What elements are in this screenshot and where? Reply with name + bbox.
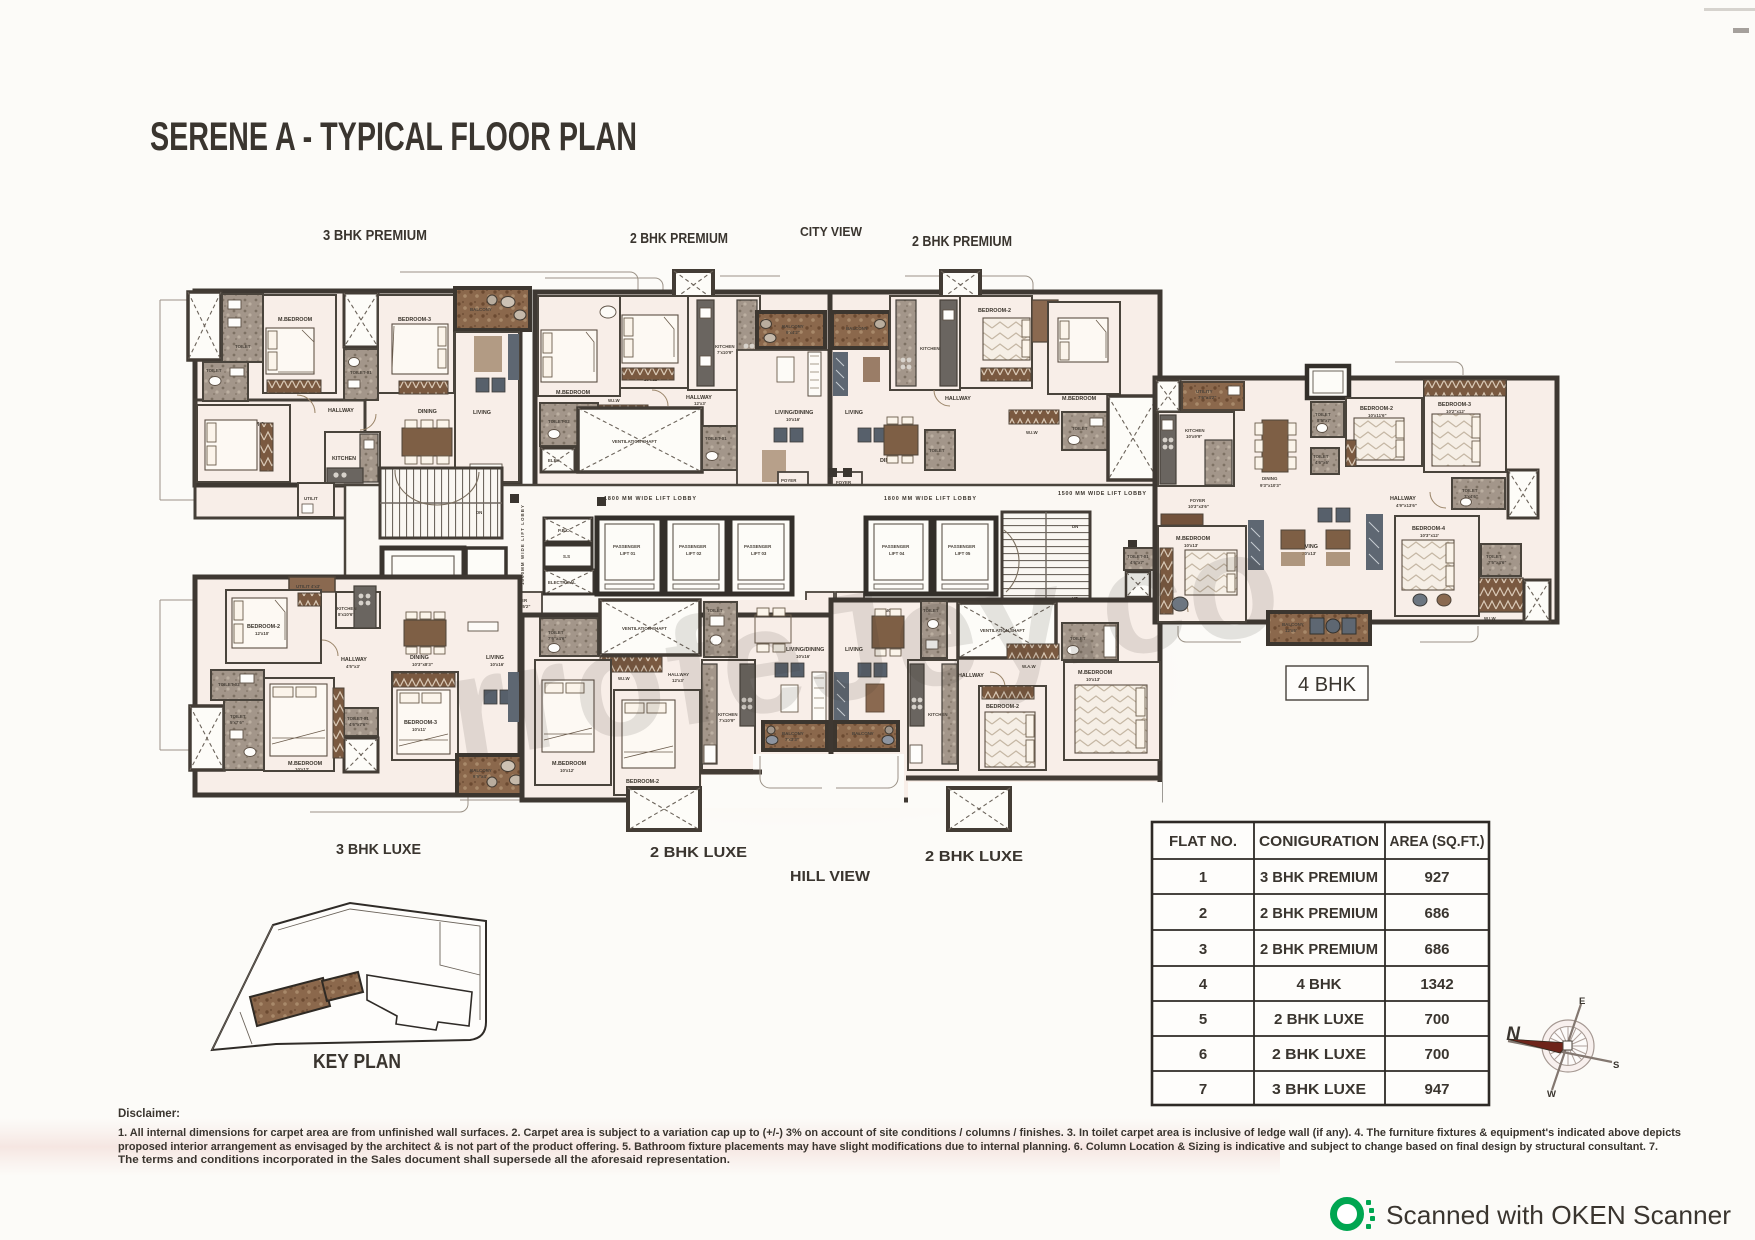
svg-text:W: W xyxy=(1547,1089,1556,1100)
svg-text:12'x10': 12'x10' xyxy=(255,631,269,636)
svg-text:2 BHK PREMIUM: 2 BHK PREMIUM xyxy=(912,234,1012,250)
svg-text:The terms and conditions incor: The terms and conditions incorporated in… xyxy=(118,1154,730,1166)
svg-text:KITCHEN: KITCHEN xyxy=(920,346,940,351)
svg-text:LIFT 03: LIFT 03 xyxy=(751,551,767,556)
svg-text:TOILET-02: TOILET-02 xyxy=(218,682,240,687)
svg-text:KEY PLAN: KEY PLAN xyxy=(313,1051,401,1073)
svg-text:KITCHEN: KITCHEN xyxy=(1185,428,1205,433)
svg-text:BALCONY: BALCONY xyxy=(470,307,492,312)
svg-text:VENTILATION SHAFT: VENTILATION SHAFT xyxy=(612,439,657,444)
svg-text:LIFT 01: LIFT 01 xyxy=(620,551,636,556)
svg-text:7'6"x4'2": 7'6"x4'2" xyxy=(1198,395,1216,400)
svg-text:700: 700 xyxy=(1424,1011,1449,1028)
svg-text:UTILIT: UTILIT xyxy=(304,496,318,501)
svg-text:10'x11': 10'x11' xyxy=(412,727,426,732)
svg-text:BALCONY: BALCONY xyxy=(846,326,868,331)
svg-text:M.BEDROOM: M.BEDROOM xyxy=(1062,396,1097,402)
svg-text:4 BHK: 4 BHK xyxy=(1296,976,1341,993)
svg-text:TOILET-01: TOILET-01 xyxy=(350,370,372,375)
svg-text:DINING: DINING xyxy=(1262,476,1278,481)
svg-text:2 BHK LUXE: 2 BHK LUXE xyxy=(1274,1011,1364,1028)
svg-text:686: 686 xyxy=(1424,905,1449,922)
svg-text:2 BHK PREMIUM: 2 BHK PREMIUM xyxy=(630,231,728,247)
svg-text:DN: DN xyxy=(476,510,482,515)
svg-text:10'2"x12': 10'2"x12' xyxy=(1446,409,1465,414)
svg-text:BEDROOM-2: BEDROOM-2 xyxy=(1360,406,1393,412)
svg-text:6: 6 xyxy=(1199,1046,1207,1063)
svg-text:FLAT NO.: FLAT NO. xyxy=(1169,833,1237,850)
svg-text:BEDROOM-3: BEDROOM-3 xyxy=(1438,402,1471,408)
svg-text:POYER: POYER xyxy=(781,478,797,483)
svg-text:1800 MM WIDE LIFT LOBBY: 1800 MM WIDE LIFT LOBBY xyxy=(604,496,696,502)
svg-text:Scanned with OKEN Scanner: Scanned with OKEN Scanner xyxy=(1386,1200,1731,1230)
svg-text:HALLWAY: HALLWAY xyxy=(945,396,971,402)
svg-text:DINING: DINING xyxy=(418,409,437,415)
svg-text:HALLWAY: HALLWAY xyxy=(341,657,367,663)
svg-text:12'x3': 12'x3' xyxy=(694,401,706,406)
svg-text:TOILET: TOILET xyxy=(1313,454,1329,459)
svg-text:4 BHK: 4 BHK xyxy=(1298,674,1357,696)
svg-text:2: 2 xyxy=(1199,905,1207,922)
svg-text:947: 947 xyxy=(1424,1081,1449,1098)
svg-text:10'x12': 10'x12' xyxy=(295,767,309,772)
svg-text:BEDROOM-3: BEDROOM-3 xyxy=(398,317,431,323)
svg-text:1. All internal dimensions for: 1. All internal dimensions for carpet ar… xyxy=(118,1127,1681,1139)
svg-text:7: 7 xyxy=(1199,1081,1207,1098)
svg-text:2 BHK LUXE: 2 BHK LUXE xyxy=(650,845,747,861)
svg-text:2 BHK LUXE: 2 BHK LUXE xyxy=(925,849,1023,865)
svg-text:8'5"x7': 8'5"x7' xyxy=(1317,418,1331,423)
svg-text:TOILET: TOILET xyxy=(235,344,251,349)
svg-text:10'3"x8'3": 10'3"x8'3" xyxy=(412,662,433,667)
svg-text:SERENE A - TYPICAL FLOOR PLAN: SERENE A - TYPICAL FLOOR PLAN xyxy=(150,115,637,159)
svg-text:10'x11'6": 10'x11'6" xyxy=(1368,413,1387,418)
svg-text:BALCONY: BALCONY xyxy=(852,731,874,736)
svg-text:BALCONY: BALCONY xyxy=(782,324,804,329)
svg-text:PASSENGER: PASSENGER xyxy=(679,544,707,549)
svg-text:LIVING/DINING: LIVING/DINING xyxy=(775,410,813,416)
svg-text:DINING: DINING xyxy=(410,655,429,661)
svg-text:9'3"x10'3": 9'3"x10'3" xyxy=(1260,483,1281,488)
svg-text:3 BHK PREMIUM: 3 BHK PREMIUM xyxy=(1260,869,1378,886)
svg-text:BEDROOM-2: BEDROOM-2 xyxy=(247,624,280,630)
svg-text:KITCHEN: KITCHEN xyxy=(332,456,356,462)
svg-text:S.S: S.S xyxy=(563,554,570,559)
svg-text:2 BHK PREMIUM: 2 BHK PREMIUM xyxy=(1260,905,1378,922)
svg-text:1800MM WIDE LIFT LOBBY: 1800MM WIDE LIFT LOBBY xyxy=(520,505,525,585)
svg-text:10'3"x12': 10'3"x12' xyxy=(1420,533,1439,538)
svg-text:3 BHK LUXE: 3 BHK LUXE xyxy=(336,842,421,858)
svg-text:BEDROOM-3: BEDROOM-3 xyxy=(404,720,437,726)
svg-text:4'6"x6': 4'6"x6' xyxy=(1315,460,1329,465)
svg-text:686: 686 xyxy=(1424,941,1449,958)
svg-text:LIFT 02: LIFT 02 xyxy=(686,551,702,556)
svg-text:UTILITY: UTILITY xyxy=(1196,389,1213,394)
svg-text:5'x7'6": 5'x7'6" xyxy=(230,720,244,725)
svg-text:KITCHEN: KITCHEN xyxy=(337,606,357,611)
svg-text:N: N xyxy=(1506,1024,1521,1045)
svg-text:TOILET-01: TOILET-01 xyxy=(705,436,727,441)
svg-text:TOILET: TOILET xyxy=(929,448,945,453)
svg-text:TOILET: TOILET xyxy=(1462,488,1478,493)
svg-text:4: 4 xyxy=(1199,976,1208,993)
svg-text:7'x10'9": 7'x10'9" xyxy=(717,350,733,355)
svg-text:LIVING: LIVING xyxy=(845,410,863,416)
svg-text:700: 700 xyxy=(1424,1046,1449,1063)
svg-text:4'9"x13'6": 4'9"x13'6" xyxy=(1396,503,1417,508)
svg-text:M.BEDROOM: M.BEDROOM xyxy=(556,390,591,396)
svg-text:CITY VIEW: CITY VIEW xyxy=(800,224,863,239)
svg-text:BEDROOM-4: BEDROOM-4 xyxy=(1412,526,1445,532)
svg-text:1500 MM WIDE LIFT LOBBY: 1500 MM WIDE LIFT LOBBY xyxy=(1058,491,1146,497)
svg-text:10'x9'9": 10'x9'9" xyxy=(1186,434,1202,439)
svg-text:PASSENGER: PASSENGER xyxy=(744,544,772,549)
svg-text:10'x16': 10'x16' xyxy=(786,417,800,422)
svg-text:7'5"x4'6": 7'5"x4'6" xyxy=(1488,560,1506,565)
svg-text:BEDROOM-2: BEDROOM-2 xyxy=(626,779,659,785)
svg-text:TOILET-02: TOILET-02 xyxy=(548,419,570,424)
svg-text:1342: 1342 xyxy=(1420,976,1453,993)
svg-text:3: 3 xyxy=(1199,941,1207,958)
svg-text:TOILET-01: TOILET-01 xyxy=(347,716,369,721)
svg-text:W.I.W: W.I.W xyxy=(1484,616,1497,621)
svg-text:1800 MM WIDE LIFT LOBBY: 1800 MM WIDE LIFT LOBBY xyxy=(884,496,976,502)
svg-text:9'x4'2": 9'x4'2" xyxy=(786,330,800,335)
svg-text:BEDROOM-2: BEDROOM-2 xyxy=(978,308,1011,314)
svg-text:2 BHK LUXE: 2 BHK LUXE xyxy=(1272,1046,1366,1063)
svg-text:ELEV: ELEV xyxy=(548,458,560,463)
svg-text:3 BHK PREMIUM: 3 BHK PREMIUM xyxy=(323,228,427,244)
svg-text:LIVING: LIVING xyxy=(473,410,491,416)
svg-text:TOILET: TOILET xyxy=(206,368,222,373)
svg-text:3 BHK LUXE: 3 BHK LUXE xyxy=(1272,1081,1366,1098)
svg-text:TOILET: TOILET xyxy=(1486,554,1502,559)
svg-text:HILL VIEW: HILL VIEW xyxy=(790,868,871,885)
svg-text:UTILIT 4'x3': UTILIT 4'x3' xyxy=(296,584,320,589)
svg-text:HALLWAY: HALLWAY xyxy=(328,408,354,414)
svg-text:4'5"x3': 4'5"x3' xyxy=(346,664,360,669)
svg-text:1: 1 xyxy=(1199,869,1207,886)
svg-text:AREA (SQ.FT.): AREA (SQ.FT.) xyxy=(1390,833,1485,850)
svg-text:4'6"x7'6": 4'6"x7'6" xyxy=(349,722,367,727)
svg-text:8'x10'6": 8'x10'6" xyxy=(338,612,354,617)
svg-text:W.I.W: W.I.W xyxy=(1026,430,1039,435)
svg-text:W.I.W: W.I.W xyxy=(608,398,621,403)
svg-text:PASSENGER: PASSENGER xyxy=(613,544,641,549)
svg-text:927: 927 xyxy=(1424,869,1449,886)
svg-text:proposed interior arrangement: proposed interior arrangement as envisag… xyxy=(118,1141,1658,1153)
svg-text:HALLWAY: HALLWAY xyxy=(1390,496,1416,502)
svg-text:FOYER: FOYER xyxy=(1190,498,1206,503)
svg-text:TOILET: TOILET xyxy=(230,714,246,719)
svg-text:TOILET: TOILET xyxy=(1315,412,1331,417)
svg-text:ELECTRICAL: ELECTRICAL xyxy=(548,580,576,585)
svg-text:CONIGURATION: CONIGURATION xyxy=(1259,833,1379,850)
svg-text:KITCHEN: KITCHEN xyxy=(715,344,735,349)
svg-text:2 BHK PREMIUM: 2 BHK PREMIUM xyxy=(1260,941,1378,958)
svg-text:P.B.C: P.B.C xyxy=(558,528,570,533)
svg-text:M.BEDROOM: M.BEDROOM xyxy=(278,317,313,323)
svg-text:5: 5 xyxy=(1199,1011,1207,1028)
svg-text:TOILET: TOILET xyxy=(1072,426,1088,431)
svg-text:PASSENGER: PASSENGER xyxy=(882,544,910,549)
svg-text:E: E xyxy=(1579,996,1585,1007)
svg-text:S: S xyxy=(1613,1060,1619,1071)
svg-text:Disclaimer:: Disclaimer: xyxy=(118,1108,180,1120)
